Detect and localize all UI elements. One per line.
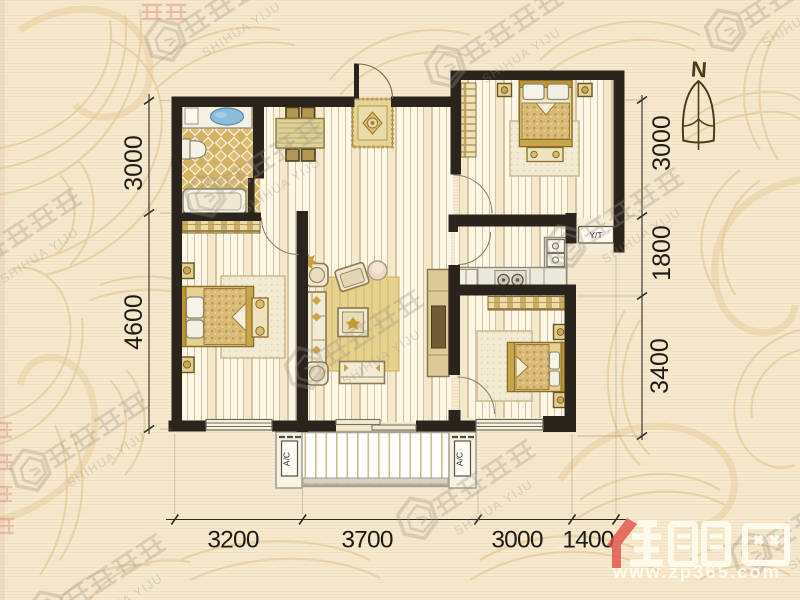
svg-text:www.zp365.com: www.zp365.com bbox=[612, 561, 781, 582]
svg-text:3400: 3400 bbox=[646, 338, 674, 394]
svg-text:3700: 3700 bbox=[341, 527, 392, 554]
svg-text:4600: 4600 bbox=[120, 294, 148, 350]
svg-text:A/C: A/C bbox=[282, 452, 292, 466]
svg-text:3000: 3000 bbox=[491, 527, 542, 554]
svg-text:3200: 3200 bbox=[207, 527, 258, 554]
svg-text:A/C: A/C bbox=[455, 452, 465, 466]
svg-text:N: N bbox=[690, 56, 708, 82]
svg-text:3000: 3000 bbox=[648, 115, 676, 171]
svg-text:1400: 1400 bbox=[562, 527, 613, 554]
svg-text:3000: 3000 bbox=[120, 135, 148, 191]
